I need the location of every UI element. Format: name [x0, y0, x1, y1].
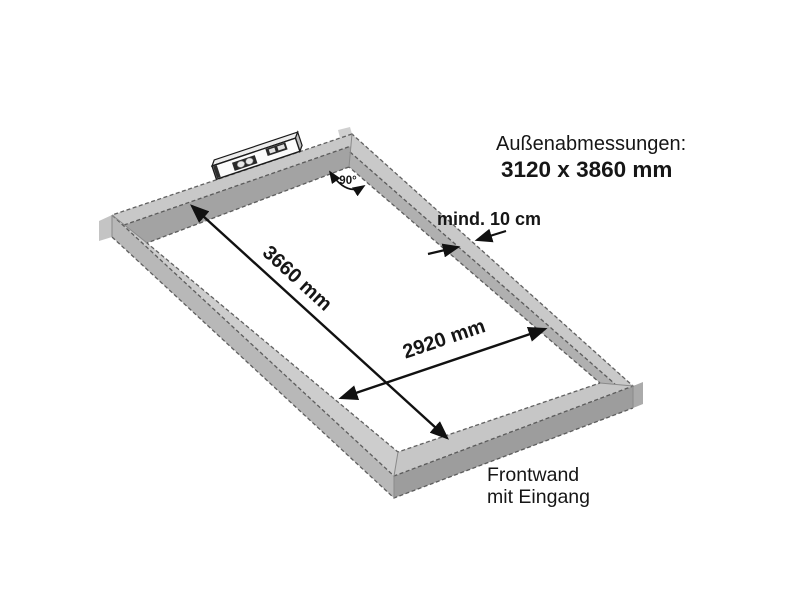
- foundation-frame: [99, 127, 643, 498]
- diagram-canvas: Außenabmessungen: 3120 x 3860 mm mind. 1…: [0, 0, 800, 600]
- frame-endcap-right: [633, 382, 643, 408]
- min-beam-width-label: mind. 10 cm: [437, 209, 541, 229]
- front-wall-label-line1: Frontwand: [487, 464, 579, 486]
- front-wall-label-line2: mit Eingang: [487, 486, 590, 508]
- min-width-arrow-outer: [477, 231, 506, 240]
- outer-dimensions-label: Außenabmessungen:: [496, 133, 686, 155]
- corner-angle-label: 90°: [339, 175, 357, 187]
- inner-length-label: 3660 mm: [258, 242, 336, 316]
- inner-width-label: 2920 mm: [400, 315, 488, 363]
- rail-nearleft-top: [112, 215, 398, 476]
- frame-side-left: [112, 215, 394, 498]
- frame-drawing: Außenabmessungen: 3120 x 3860 mm mind. 1…: [0, 0, 800, 600]
- outer-dimensions-value: 3120 x 3860 mm: [501, 157, 672, 182]
- frame-endcap-left: [99, 215, 112, 241]
